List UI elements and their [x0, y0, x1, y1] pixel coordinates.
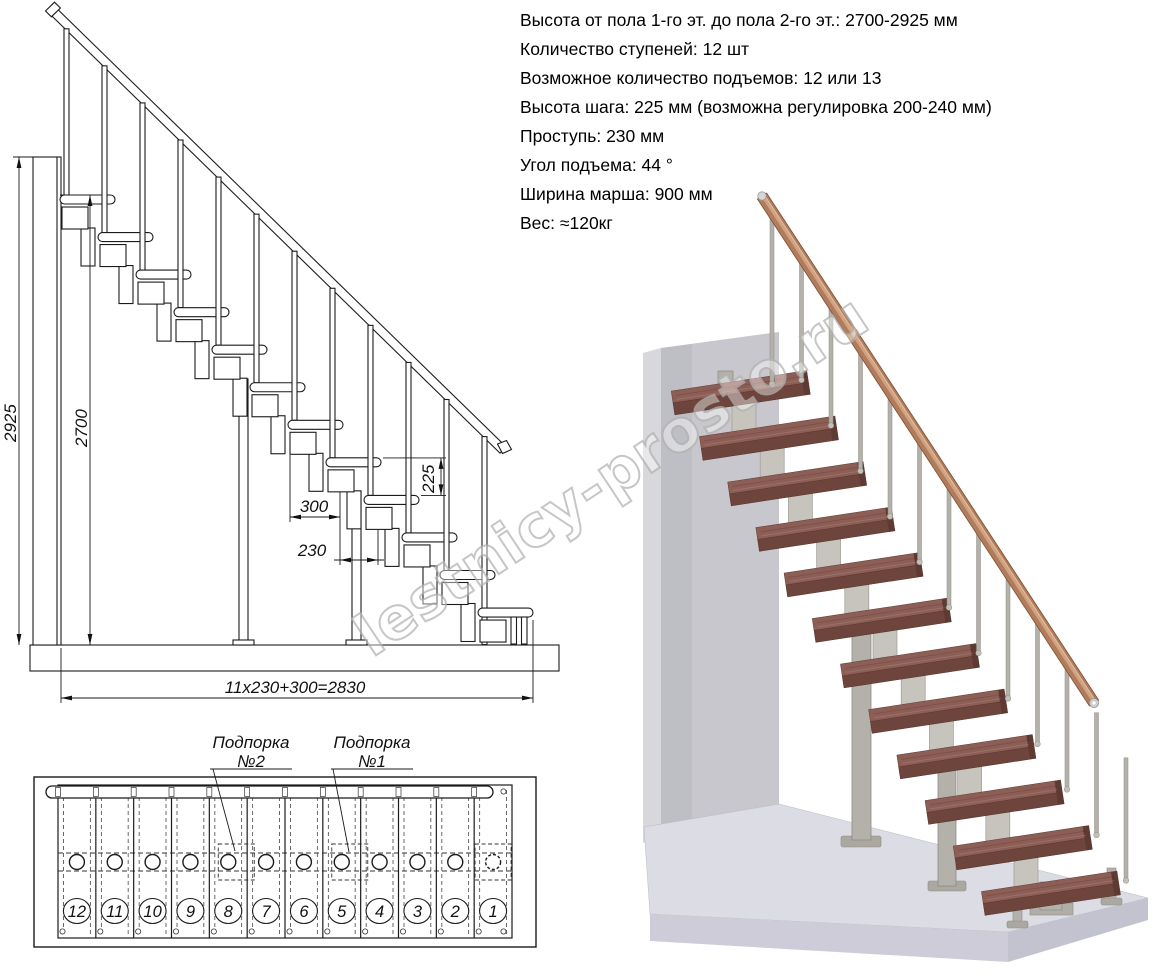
baluster-3d [947, 488, 951, 610]
spine-joint [372, 855, 387, 870]
dim-label-230: 230 [297, 541, 327, 560]
module-connector [385, 528, 399, 566]
baluster [64, 29, 69, 195]
module-connector [195, 341, 209, 379]
baluster [292, 251, 297, 420]
spine-joint [259, 855, 274, 870]
step-number-label: 10 [143, 903, 162, 921]
module-box [328, 470, 354, 492]
spine-joint [410, 855, 425, 870]
spine-joint [69, 855, 84, 870]
baluster-3d [1036, 623, 1040, 746]
baluster [178, 140, 183, 308]
spine-joint [486, 855, 501, 870]
module-connector [347, 491, 361, 529]
step1-leg [511, 617, 517, 644]
dim-label-300: 300 [300, 497, 329, 516]
module-connector [309, 453, 323, 491]
module-box [366, 507, 392, 529]
dim-label-2700: 2700 [72, 409, 91, 448]
support1-label: Подпорка [334, 733, 411, 752]
spine-joint [334, 855, 349, 870]
step-number-label: 7 [261, 903, 271, 921]
module-connector [119, 266, 133, 304]
step-number-label: 8 [224, 903, 234, 921]
module-connector [271, 416, 285, 454]
step-number-label: 2 [450, 903, 460, 921]
baluster [254, 214, 259, 383]
baluster [330, 288, 335, 458]
spine-joint [107, 855, 122, 870]
step-number-label: 3 [413, 903, 423, 921]
dim-label-rise-225: 225 [419, 464, 438, 494]
dim-label-total-height: 2925 [1, 404, 20, 443]
baluster-3d [888, 397, 892, 518]
module-box [214, 357, 240, 379]
baluster-3d [1124, 758, 1128, 883]
baluster-3d [918, 443, 922, 564]
handrail-cap-3d [758, 192, 766, 200]
baluster [102, 66, 107, 233]
module-connector [233, 378, 247, 416]
baluster [216, 177, 221, 345]
step-number-label: 11 [106, 903, 123, 921]
module-box [100, 245, 126, 267]
support-column-1-3d [938, 764, 956, 886]
module-connector [81, 228, 95, 266]
plan-top-view: 121110987654321 Подпорка №2 Подпорка №1 [34, 733, 536, 947]
module-box [138, 282, 164, 304]
step-number-label: 4 [375, 903, 384, 921]
spine-joint [183, 855, 198, 870]
step-number-label: 9 [186, 903, 195, 921]
step-number-label: 12 [68, 903, 86, 921]
stair-drawing-canvas: 2925 2700 225 300 230 11x230+300=2830 12… [0, 0, 1166, 977]
spine-joint [221, 855, 236, 870]
baluster [140, 103, 145, 270]
step-number-label: 5 [337, 903, 347, 921]
step-number-label: 1 [488, 903, 497, 921]
support-column-2 [239, 379, 248, 645]
baluster [406, 362, 411, 533]
baluster-3d [1065, 668, 1069, 792]
module-box [290, 432, 316, 454]
plan-handrail [46, 786, 493, 798]
baluster-3d [977, 533, 981, 655]
support2-label-num: №2 [237, 752, 265, 771]
module-box [252, 395, 278, 417]
support1-label-num: №1 [358, 752, 386, 771]
module-connector [157, 303, 171, 341]
spine-joint [145, 855, 160, 870]
baluster-3d [1006, 578, 1010, 701]
floor-base [30, 645, 559, 671]
step1-leg [522, 617, 528, 644]
spine-joint [448, 855, 463, 870]
module-box [62, 207, 88, 229]
render-3d-view [643, 192, 1148, 962]
baluster-3d [859, 352, 863, 473]
module-box [480, 620, 506, 642]
tread [478, 608, 533, 617]
baluster-3d [1095, 713, 1099, 837]
module-box [176, 320, 202, 342]
step-number-label: 6 [299, 903, 309, 921]
spine-joint [296, 855, 311, 870]
baluster [368, 325, 373, 495]
dim-label-total-run: 11x230+300=2830 [225, 678, 366, 697]
support2-label: Подпорка [213, 733, 290, 752]
